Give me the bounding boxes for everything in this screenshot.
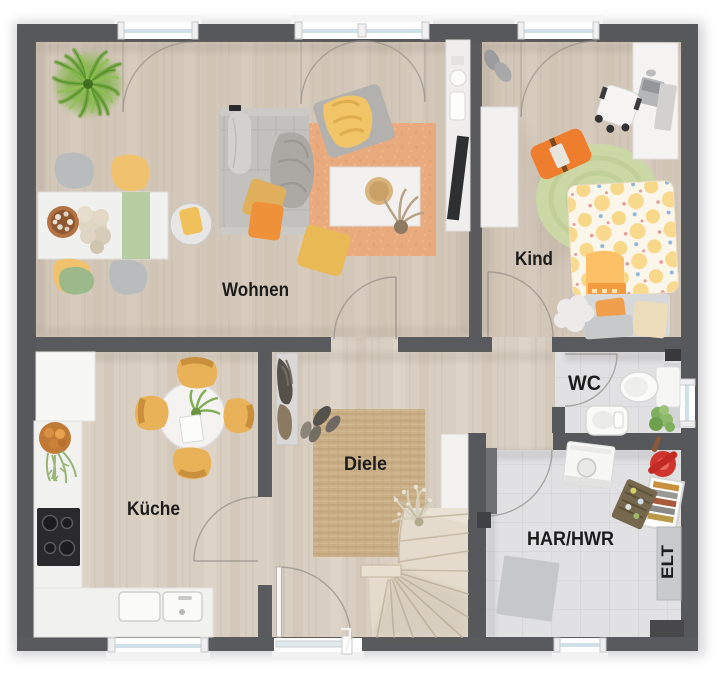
svg-text:ELT: ELT	[658, 544, 677, 579]
svg-text:Kind: Kind	[515, 248, 553, 270]
svg-text:Wohnen: Wohnen	[222, 279, 289, 301]
svg-text:Diele: Diele	[344, 453, 387, 475]
svg-text:HAR/HWR: HAR/HWR	[527, 528, 614, 550]
svg-text:Küche: Küche	[127, 498, 180, 520]
svg-text:WC: WC	[568, 372, 601, 395]
